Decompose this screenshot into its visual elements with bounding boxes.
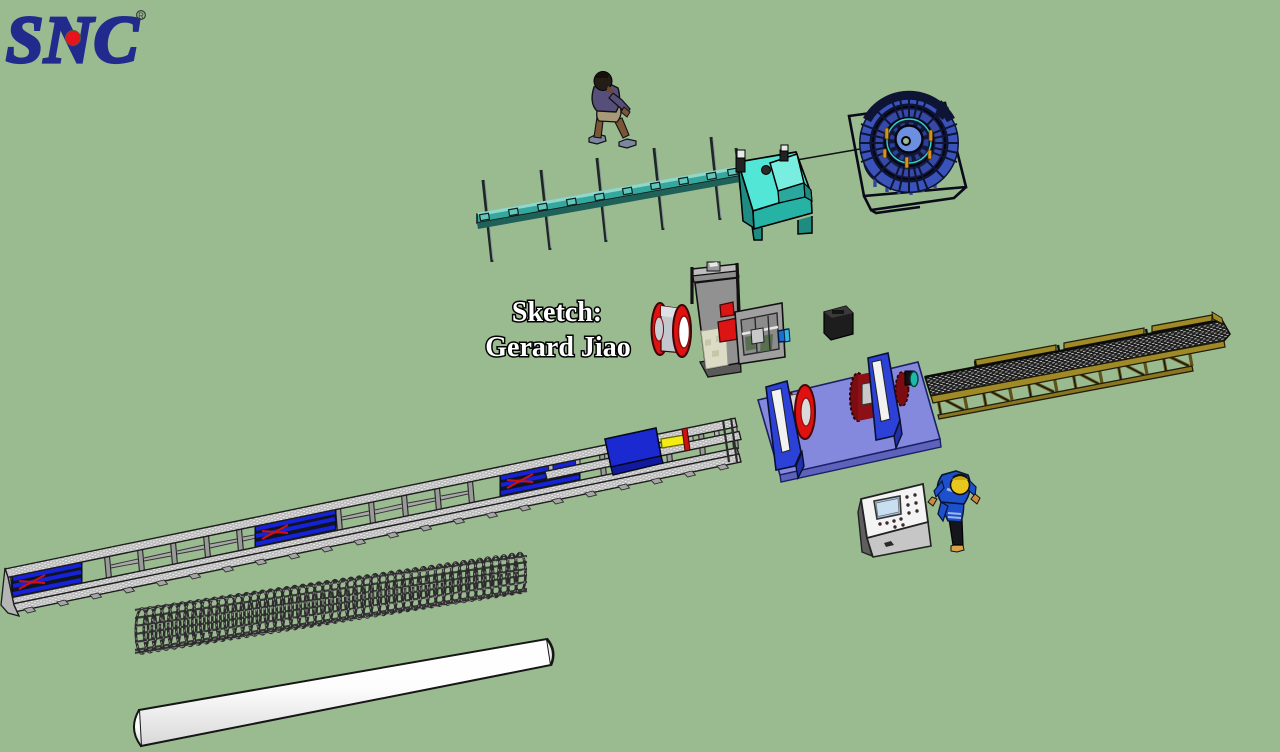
svg-text:Sketch:: Sketch:: [512, 297, 602, 328]
svg-text:R: R: [138, 12, 144, 21]
svg-text:Gerard Jiao: Gerard Jiao: [485, 332, 630, 363]
